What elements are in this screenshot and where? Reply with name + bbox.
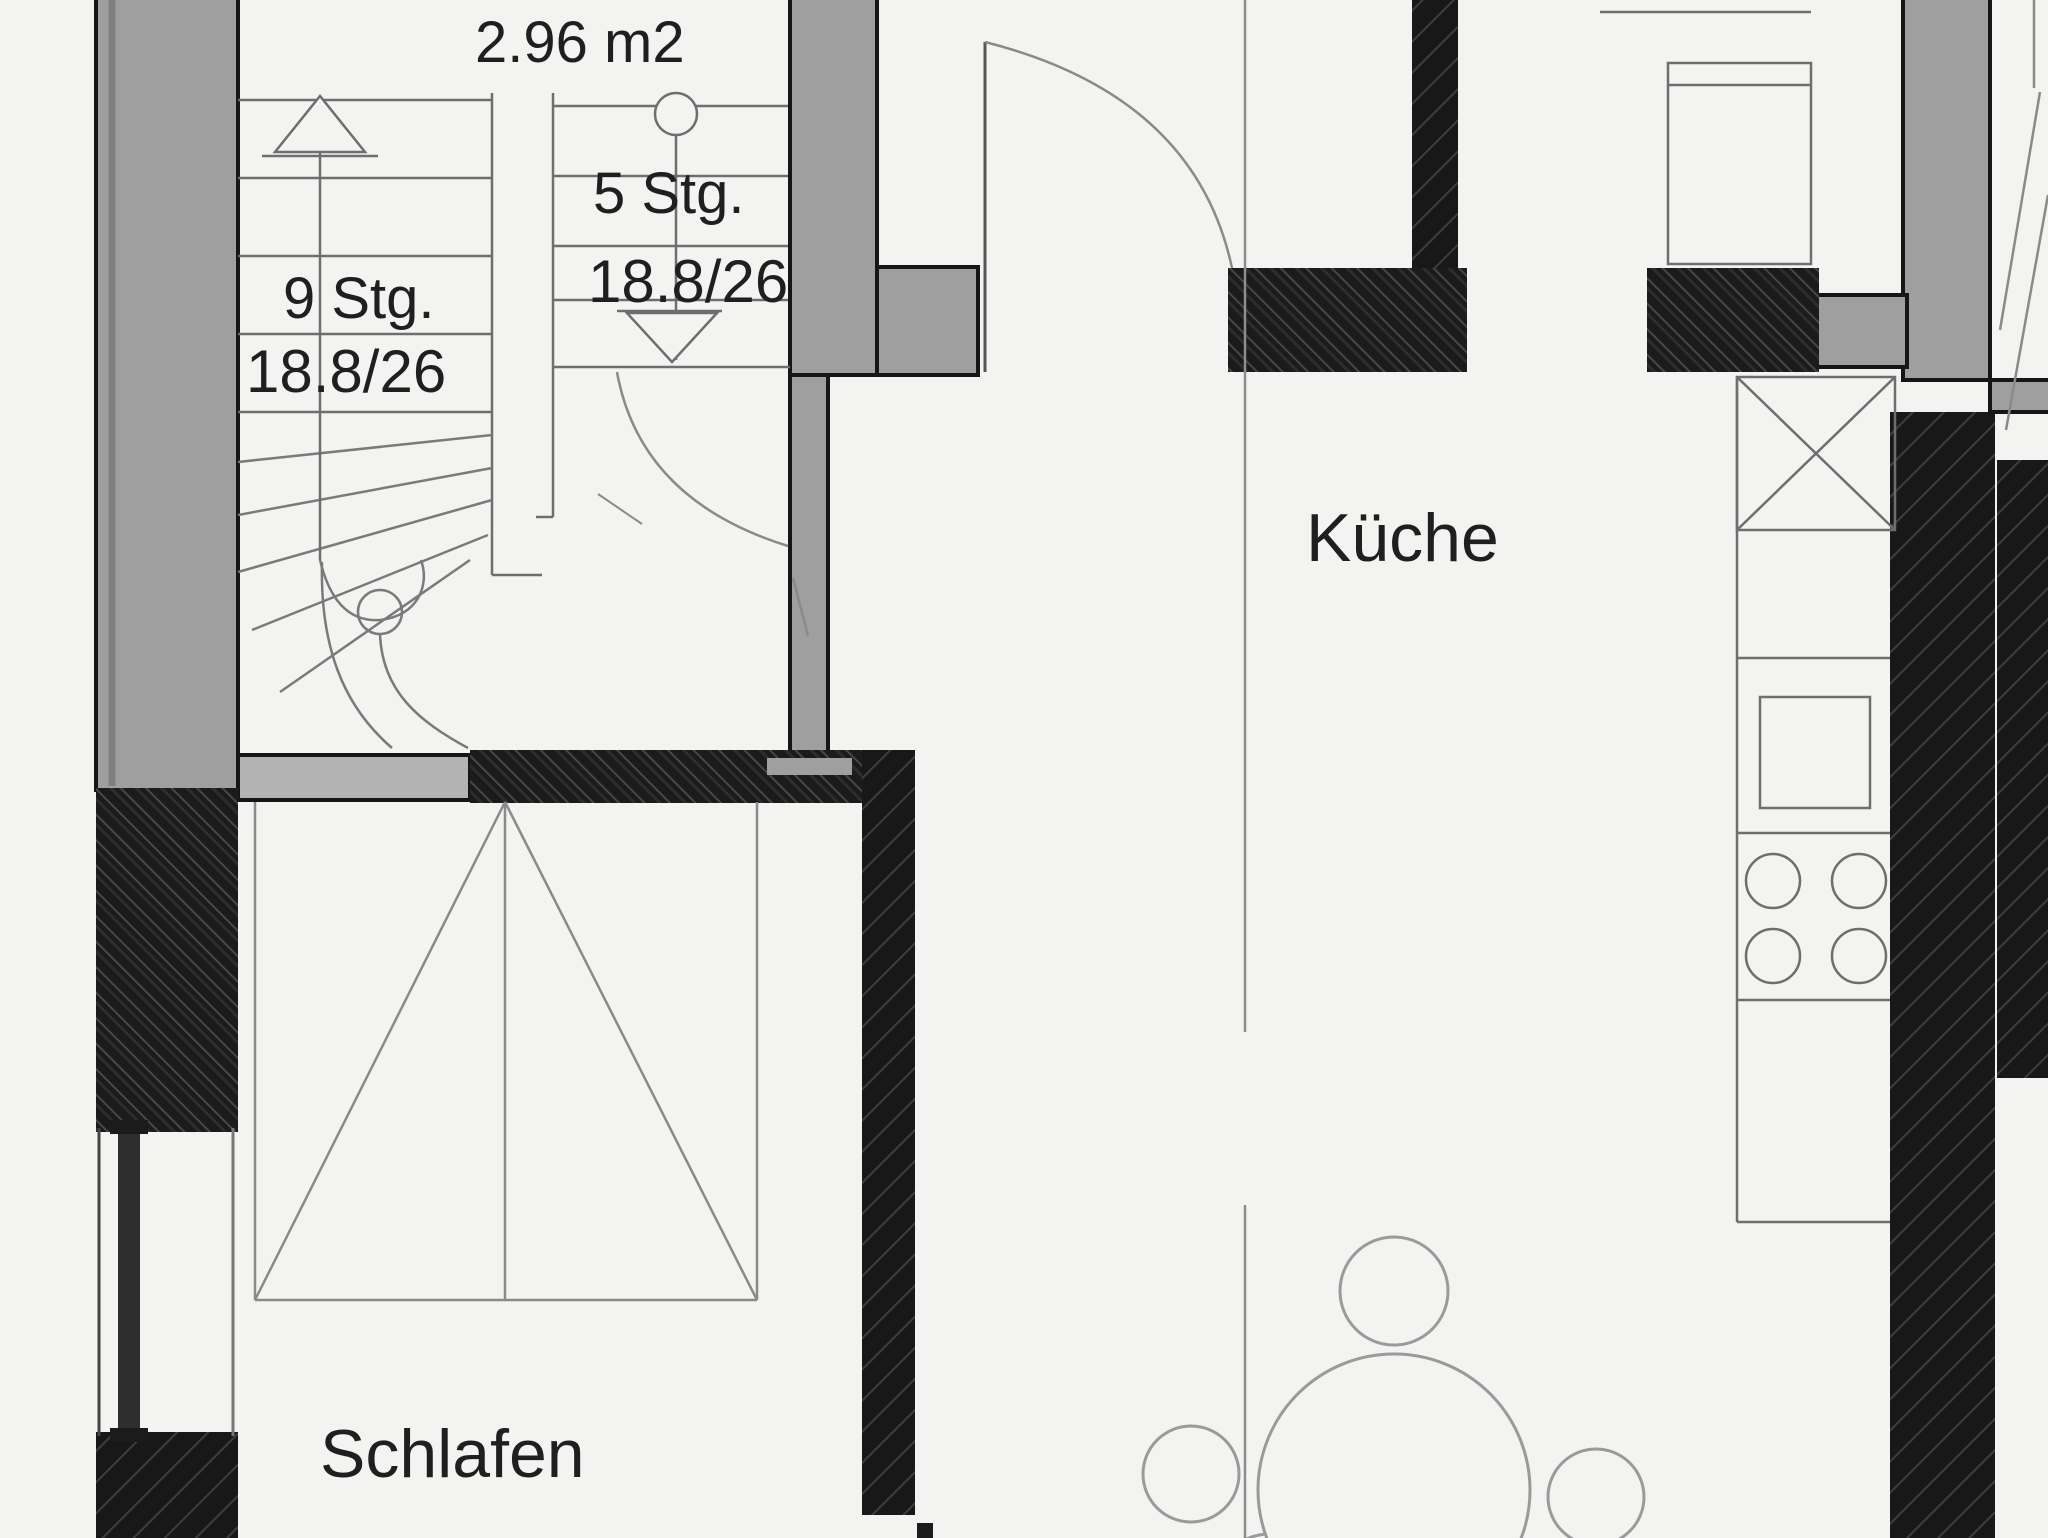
stair-down-arrow-icon	[617, 92, 722, 362]
kitchen-top-wall-left	[1228, 268, 1467, 372]
fridge-appliance	[1668, 63, 1811, 264]
right-edge-gray-strip	[1990, 380, 2048, 412]
kitchen-top-wall-vertical	[1412, 0, 1458, 268]
chair-top	[1340, 1237, 1448, 1345]
corridor-wall-column	[790, 0, 877, 375]
stair-walking-line	[320, 560, 424, 620]
bedroom-right-wall	[862, 750, 915, 1515]
kitchen-fixtures	[1600, 12, 1895, 1222]
stairs-down-count-label: 5 Stg.	[593, 165, 745, 223]
left-wall-bottom	[96, 1432, 238, 1538]
gray-walls	[96, 0, 2048, 820]
kitchen-top-wall-right	[1647, 268, 1819, 372]
entry-door-swing-arc	[985, 42, 1232, 268]
stair-winder-treads	[238, 435, 492, 692]
corridor-wall-strip	[790, 375, 828, 752]
wall-end-dot	[917, 1523, 933, 1538]
stair-area-size-label: 2.96 m2	[475, 14, 685, 72]
neighbor-hatch-lines	[2000, 0, 2048, 430]
stair-door-swing-arc	[617, 372, 788, 546]
chair-right	[1548, 1449, 1644, 1538]
round-table	[1258, 1354, 1530, 1538]
window-symbol	[99, 1120, 233, 1442]
wardrobe-cross-symbol	[255, 802, 757, 1300]
bedroom-room-label: Schlafen	[320, 1420, 585, 1488]
kitchen-right-wall-upper	[1903, 0, 1990, 380]
kitchen-room-label: Küche	[1306, 504, 1499, 572]
oven-square	[1760, 697, 1870, 808]
stove-four-burners	[1746, 854, 1886, 983]
stairs-down-dimension-label: 18.8/26	[588, 252, 788, 312]
left-wall-mid	[96, 788, 238, 1132]
bedroom-top-wall-lintel	[767, 758, 852, 775]
window-glazing-bar	[118, 1132, 140, 1434]
neighbor-wall-block	[1997, 460, 2048, 1078]
corridor-wall-block	[877, 267, 978, 375]
stairs-up-dimension-label: 18.8/26	[246, 342, 446, 402]
bedroom-top-wall	[470, 750, 862, 803]
left-wall-upper	[96, 0, 238, 790]
kitchen-right-wall-lower	[1890, 412, 1995, 1538]
bedroom-partition-wall	[238, 755, 470, 800]
sink-x-symbol	[1737, 377, 1895, 530]
kitchen-wall-extension	[1817, 295, 1907, 367]
floor-plan: 2.96 m2 5 Stg. 18.8/26 9 Stg. 18.8/26 Kü…	[0, 0, 2048, 1538]
stairs-up-count-label: 9 Stg.	[283, 270, 435, 328]
chair-left	[1143, 1426, 1239, 1522]
floor-plan-drawing	[0, 0, 2048, 1538]
door-tick-mark-2	[598, 494, 642, 524]
